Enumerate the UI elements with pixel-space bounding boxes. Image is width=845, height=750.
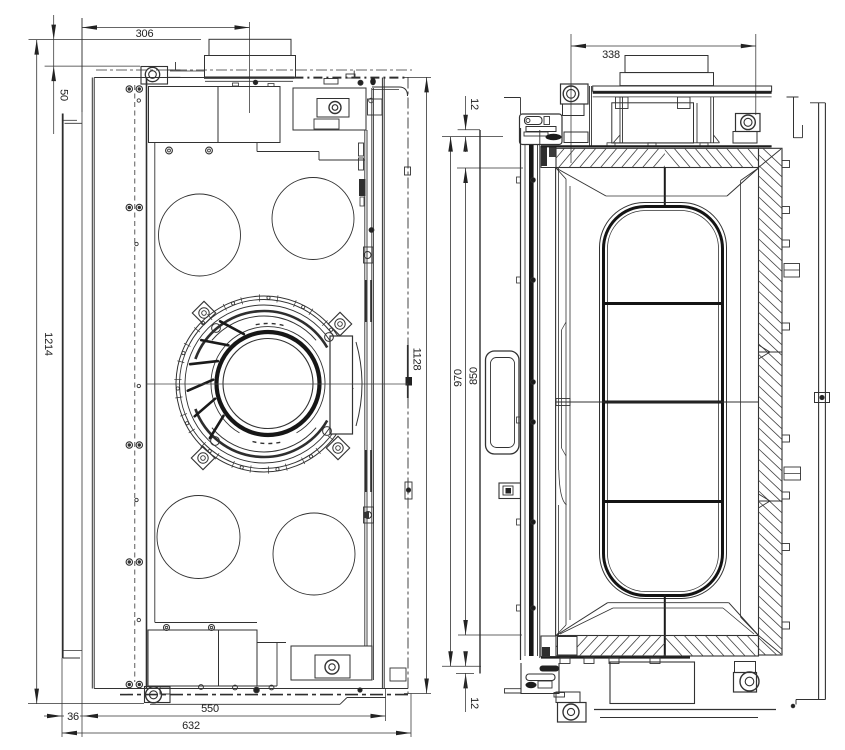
svg-text:306: 306 — [136, 28, 154, 40]
svg-text:970: 970 — [453, 369, 465, 387]
svg-text:1214: 1214 — [42, 332, 54, 356]
svg-text:338: 338 — [602, 49, 620, 61]
svg-text:550: 550 — [201, 703, 219, 715]
svg-text:1128: 1128 — [411, 348, 423, 371]
svg-text:12: 12 — [468, 697, 480, 709]
svg-text:12: 12 — [468, 98, 480, 110]
svg-text:850: 850 — [468, 367, 480, 385]
svg-text:50: 50 — [58, 89, 70, 101]
svg-text:36: 36 — [67, 711, 79, 723]
svg-text:632: 632 — [182, 720, 200, 732]
